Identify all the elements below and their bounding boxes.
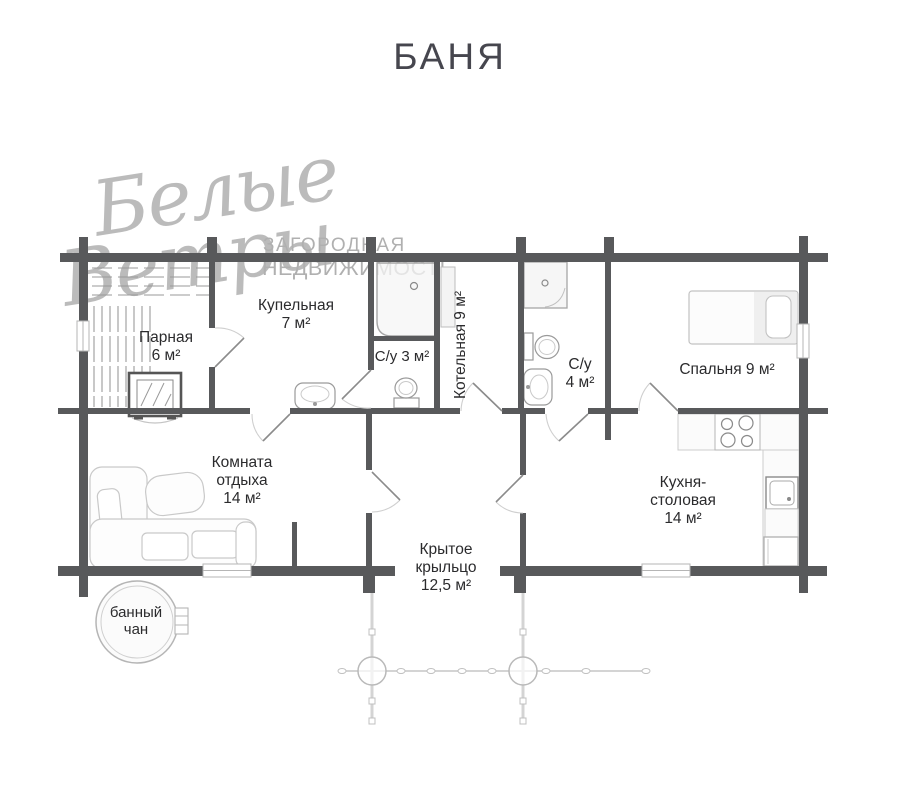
su4-toilet	[524, 333, 559, 360]
fridge	[764, 537, 798, 566]
bed	[689, 291, 798, 344]
coffee-table	[144, 471, 206, 518]
room-area: 6 м²	[139, 347, 193, 365]
plunge-shower-box	[377, 263, 437, 336]
su4-sink	[524, 369, 552, 405]
room-name: Парная	[139, 329, 193, 347]
room-label-su4: С/у 4 м²	[566, 356, 595, 392]
room-label-komnata-otdykha: Комната отдыха 14 м²	[212, 454, 273, 508]
room-area: 4 м²	[566, 374, 595, 392]
room-name: Спальня 9 м²	[679, 361, 774, 379]
room-name: Комната	[212, 454, 273, 472]
room-label-kotelnaya: Котельная 9 м²	[452, 291, 470, 399]
room-name: чан	[110, 621, 162, 638]
su3-toilet	[394, 378, 419, 408]
room-name: Кухня-	[650, 474, 716, 492]
room-label-su3: С/у 3 м²	[375, 348, 430, 365]
room-name: Купельная	[258, 297, 334, 315]
room-area: 12,5 м²	[416, 577, 477, 595]
sauna-stove	[129, 373, 181, 423]
floorplan-canvas: БАНЯ Белые Ветры ЗАГОРОДНАЯ НЕДВИЖИМОСТЬ	[0, 0, 900, 800]
su4-shower	[524, 262, 567, 308]
room-area: 14 м²	[650, 510, 716, 528]
room-label-parnaya: Парная 6 м²	[139, 329, 193, 365]
room-label-kukhnya: Кухня- столовая 14 м²	[650, 474, 716, 528]
room-name: Крытое	[416, 541, 477, 559]
room-label-spalnya: Спальня 9 м²	[679, 361, 774, 379]
room-name: столовая	[650, 492, 716, 510]
room-name: банный	[110, 604, 162, 621]
room-area: 7 м²	[258, 315, 334, 333]
room-area: 14 м²	[212, 490, 273, 508]
kupelnaya-sink	[295, 383, 335, 409]
room-name: отдыха	[212, 472, 273, 490]
porch-deck	[338, 577, 650, 724]
room-label-kupelnaya: Купельная 7 м²	[258, 297, 334, 333]
floorplan-drawing	[0, 0, 900, 800]
room-name: С/у	[566, 356, 595, 374]
cooktop	[715, 414, 760, 450]
room-label-kryltso: Крытое крыльцо 12,5 м²	[416, 541, 477, 595]
room-name: крыльцо	[416, 559, 477, 577]
room-label-bannyy-chan: банный чан	[110, 604, 162, 639]
kitchen-sink	[766, 477, 798, 509]
kitchen-appliance	[765, 509, 798, 537]
room-name: С/у 3 м²	[375, 348, 430, 365]
